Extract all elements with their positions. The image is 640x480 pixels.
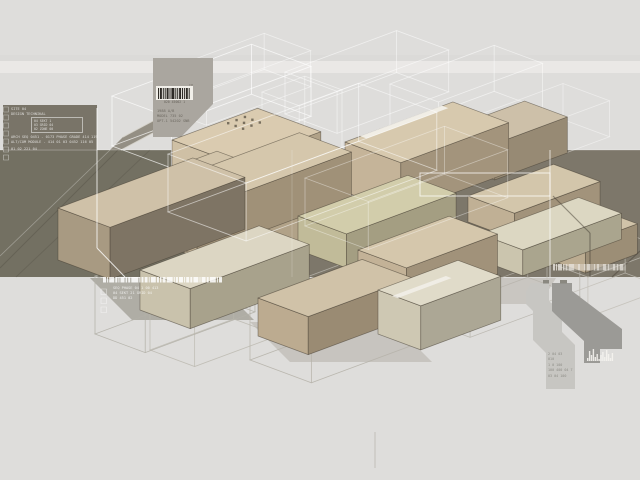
axonometric-massing-scene xyxy=(0,0,640,480)
artwork-canvas: TM 020 45002 1 1988 A/B MODEL 735 02 OPT… xyxy=(0,0,640,480)
